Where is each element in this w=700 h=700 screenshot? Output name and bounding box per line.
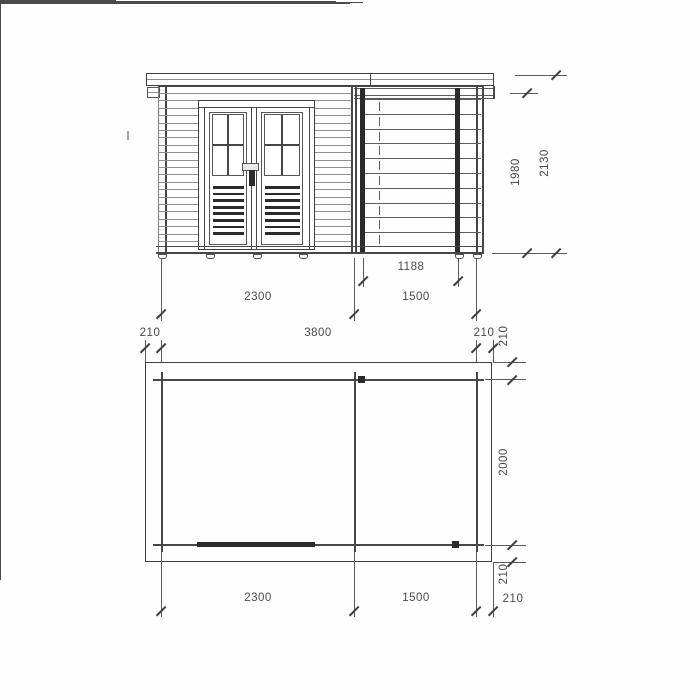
extension-line (515, 75, 567, 76)
terrace-board-end (379, 235, 380, 244)
louver-slat (213, 212, 244, 215)
dim-label-plan-left-width: 2300 (244, 592, 272, 604)
extension-line (485, 545, 526, 546)
extension-line (485, 379, 526, 380)
roof-edge-right (493, 86, 495, 99)
dimension-line (0, 175, 1, 365)
louver-slat (265, 219, 300, 222)
dimension-line (0, 3, 350, 4)
louver-slat (213, 186, 244, 189)
base-rail-top (156, 246, 484, 247)
terrace-board-end (379, 206, 380, 215)
terrace-post-left (360, 88, 365, 252)
terrace-siding-line (362, 114, 481, 115)
shed-corner-middle (351, 86, 353, 252)
siding-line (158, 93, 353, 94)
terrace-board-end (379, 132, 380, 141)
terrace-siding-line (362, 188, 481, 189)
louver-slat (265, 206, 300, 209)
plan-wall-left (161, 372, 163, 552)
terrace-siding-line (362, 143, 481, 144)
dimension-line (0, 4, 1, 175)
window-mullion-h (213, 144, 243, 146)
louver-slat (265, 212, 300, 215)
dim-label-elev-right-width: 1500 (402, 291, 430, 303)
roof-outline-plan (145, 362, 492, 562)
terrace-board-end (379, 146, 380, 155)
louver-slat (213, 219, 244, 222)
louver-slat (265, 186, 300, 189)
roof-joint-line (370, 74, 371, 85)
dim-label-plan-depth: 2000 (498, 448, 510, 476)
dim-label-total-height: 2130 (539, 149, 551, 177)
foot-block (206, 254, 215, 259)
dim-label-total-width: 3800 (304, 327, 332, 339)
louver-slat (213, 226, 244, 229)
foot-block (253, 254, 262, 259)
terrace-board-end (379, 117, 380, 126)
plan-wall-right (476, 372, 478, 552)
louver-slat (213, 199, 244, 202)
terrace-siding-line (362, 129, 481, 130)
louver-slat (265, 193, 300, 196)
door-jamb-left (204, 108, 205, 249)
terrace-board-end (379, 161, 380, 170)
extension-line (493, 340, 494, 362)
louver-slat (213, 206, 244, 209)
plan-wall-middle (354, 372, 356, 552)
louver-slat (213, 193, 244, 196)
wall-corner-right (482, 86, 484, 252)
extension-line (458, 258, 459, 287)
plan-wall-top (153, 379, 484, 381)
dimension-tick (507, 375, 517, 385)
dim-label-wall-height: 1980 (510, 158, 522, 186)
door-handle (249, 170, 255, 186)
wall-top-line (158, 86, 484, 87)
foot-block (158, 254, 167, 259)
wall-corner-right-inner (476, 86, 478, 252)
dim-label-plan-overhang-side: 210 (503, 593, 524, 605)
terrace-siding-line (362, 99, 481, 100)
terrace-siding-line (362, 217, 481, 218)
louver-slat (265, 232, 300, 235)
stray-mark (127, 131, 129, 140)
terrace-board-end (379, 191, 380, 200)
foot-block (299, 254, 308, 259)
eave-beam-line (354, 95, 494, 96)
terrace-siding-line (362, 203, 481, 204)
foot-block (473, 254, 482, 259)
terrace-board-end (379, 102, 380, 111)
door-meeting-stile (256, 108, 257, 249)
terrace-board-end (379, 176, 380, 185)
louver-slat (265, 226, 300, 229)
roof-fascia-line (147, 79, 493, 80)
foot-block (455, 254, 464, 259)
extension-line (476, 340, 477, 362)
extension-line (161, 340, 162, 362)
dim-label-elev-left-width: 2300 (244, 291, 272, 303)
terrace-siding-line (362, 158, 481, 159)
eave-beam-line (354, 88, 494, 89)
plan-post-marker-bottom (452, 541, 459, 548)
louver-slat (265, 199, 300, 202)
extension-line (145, 340, 146, 362)
shed-corner-middle (355, 86, 357, 252)
door-jamb-right (309, 108, 310, 249)
dimension-line (0, 365, 1, 580)
dim-label-plan-overhang-top: 210 (498, 326, 510, 347)
technical-drawing-canvas: 1188 2300 1500 1980 2130 210 3800 210 21… (0, 0, 700, 700)
extension-line (363, 258, 364, 287)
louver-slat (213, 232, 244, 235)
terrace-post-right (455, 88, 460, 252)
terrace-siding-line (362, 232, 481, 233)
dim-label-overhang-left: 210 (140, 327, 161, 339)
terrace-siding-line (362, 173, 481, 174)
window-mullion-h (265, 144, 299, 146)
dim-label-plan-right-width: 1500 (402, 592, 430, 604)
dim-label-overhang-right: 210 (474, 327, 495, 339)
dim-label-opening-width: 1188 (398, 261, 425, 273)
terrace-board-end (379, 220, 380, 229)
plan-door-threshold (197, 542, 315, 547)
plan-post-marker-top (358, 376, 365, 383)
